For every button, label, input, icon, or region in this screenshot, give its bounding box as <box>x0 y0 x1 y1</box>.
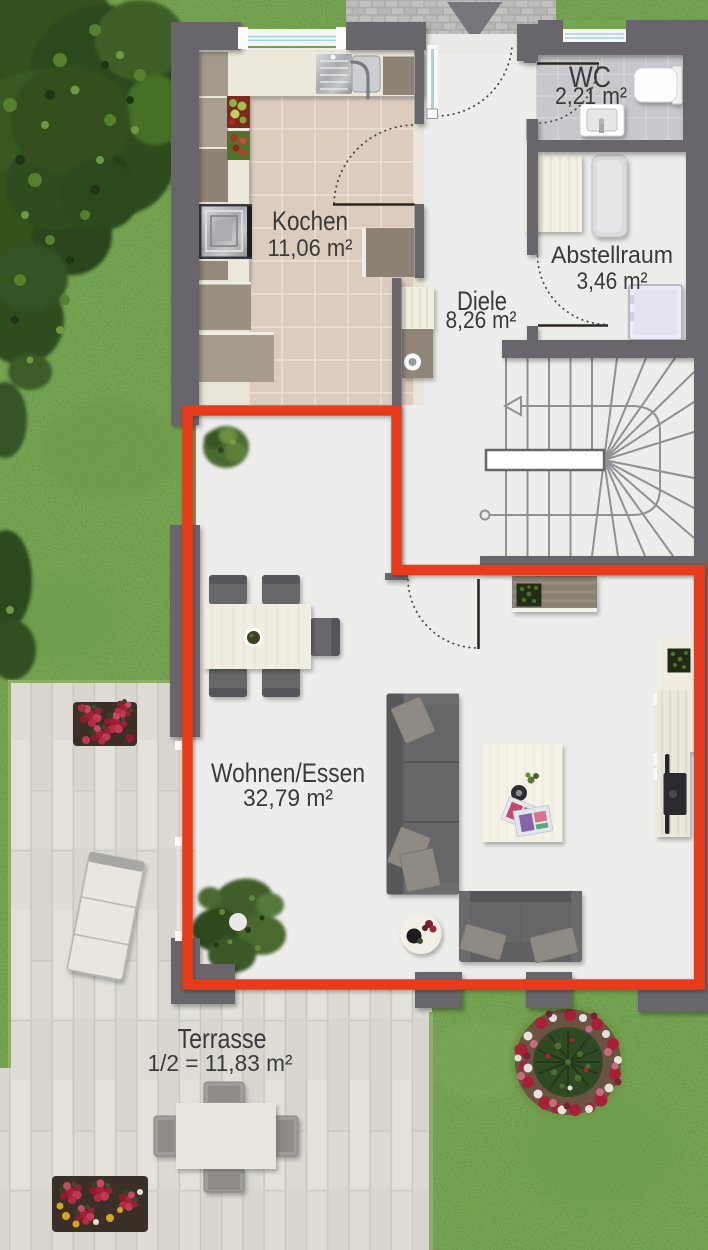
svg-text:Kochen: Kochen <box>272 206 348 236</box>
svg-text:1/2 = 11,83 m²: 1/2 = 11,83 m² <box>148 1050 293 1076</box>
svg-text:32,79 m²: 32,79 m² <box>243 785 333 812</box>
svg-text:Abstellraum: Abstellraum <box>551 242 673 269</box>
svg-text:8,26 m²: 8,26 m² <box>446 307 517 334</box>
svg-text:2,21 m²: 2,21 m² <box>555 83 627 110</box>
svg-text:3,46 m²: 3,46 m² <box>577 268 648 295</box>
svg-text:11,06 m²: 11,06 m² <box>268 235 353 262</box>
svg-text:Wohnen/Essen: Wohnen/Essen <box>211 758 365 788</box>
